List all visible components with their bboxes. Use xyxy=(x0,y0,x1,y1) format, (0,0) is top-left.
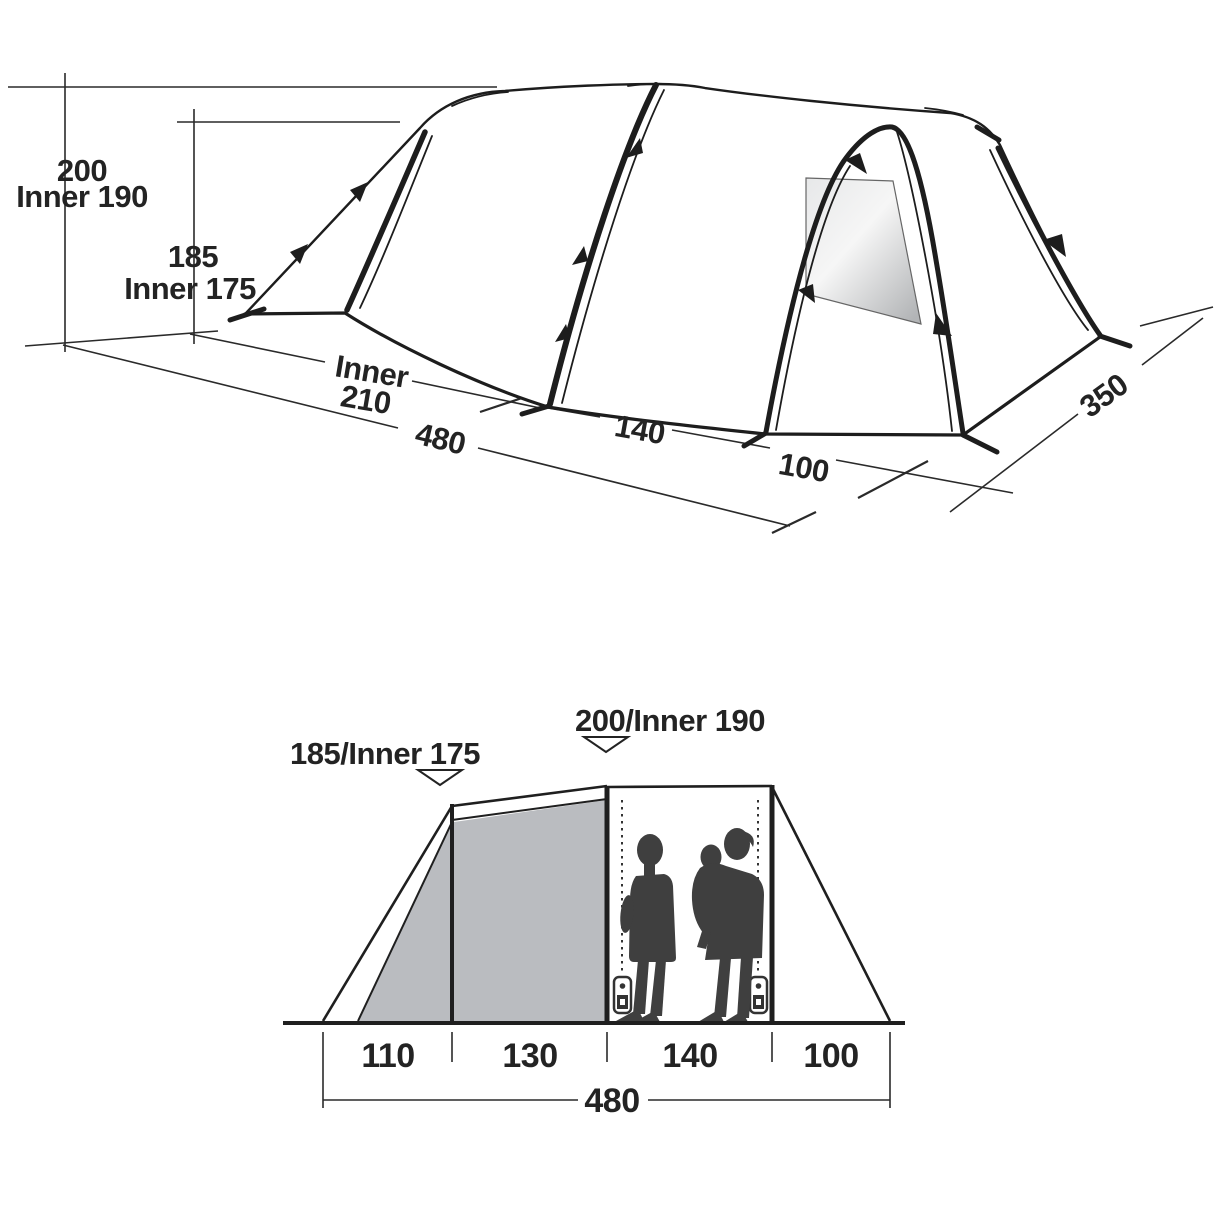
dim-140-label: 140 xyxy=(612,408,668,451)
main-height-pointer-icon xyxy=(584,737,628,752)
ground-back-left-line xyxy=(25,331,218,346)
right-slope xyxy=(772,787,890,1021)
tent-dimensions-figure: 200 Inner 190 185 Inner 175 Inner 210 48… xyxy=(0,0,1220,1220)
segment-100-label: 100 xyxy=(803,1037,858,1075)
person-leg xyxy=(714,958,731,1017)
figure-svg: 200 Inner 190 185 Inner 175 Inner 210 48… xyxy=(0,0,1220,1220)
tent-side-elevation-view: 185/Inner 175 200/Inner 190 xyxy=(283,703,905,1120)
dim-100-label: 100 xyxy=(776,446,832,489)
person-body xyxy=(629,874,676,962)
door-top-edge xyxy=(607,786,772,787)
inner-210-dim-line-a xyxy=(190,334,325,362)
segment-130-label: 130 xyxy=(502,1037,557,1075)
dim-480-line-b xyxy=(478,448,790,526)
dim-350-end-tick xyxy=(1140,307,1213,326)
person-leg xyxy=(633,960,649,1014)
person-head xyxy=(637,834,663,866)
front-height-pointer-icon xyxy=(418,770,462,785)
dim-inner-175-label: Inner 175 xyxy=(124,271,256,306)
door-left-peg xyxy=(744,433,766,446)
dim-inner-190-label: Inner 190 xyxy=(16,179,148,214)
people-silhouettes xyxy=(616,828,764,1022)
dim-185-label: 185 xyxy=(168,239,218,274)
segment-140-label: 140 xyxy=(662,1037,717,1075)
front-height-label: 185/Inner 175 xyxy=(290,736,480,771)
zipper-pull-icon xyxy=(614,977,631,1013)
total-480-label: 480 xyxy=(584,1082,639,1120)
tent-perspective-view: 200 Inner 190 185 Inner 175 Inner 210 48… xyxy=(8,73,1213,533)
back-right-peg xyxy=(1100,336,1130,346)
inner-cabin-panel xyxy=(454,800,607,1021)
dim-480-label: 480 xyxy=(412,416,469,462)
length-dim-line-c xyxy=(836,460,1013,493)
main-height-label: 200/Inner 190 xyxy=(575,703,765,738)
segment-110-label: 110 xyxy=(361,1037,414,1075)
dim-350-label: 350 xyxy=(1073,367,1134,425)
person-leg xyxy=(650,960,666,1016)
dim-350-line-b xyxy=(1142,318,1203,365)
zipper-pull-icon xyxy=(750,977,767,1013)
door-right-peg xyxy=(963,435,997,452)
